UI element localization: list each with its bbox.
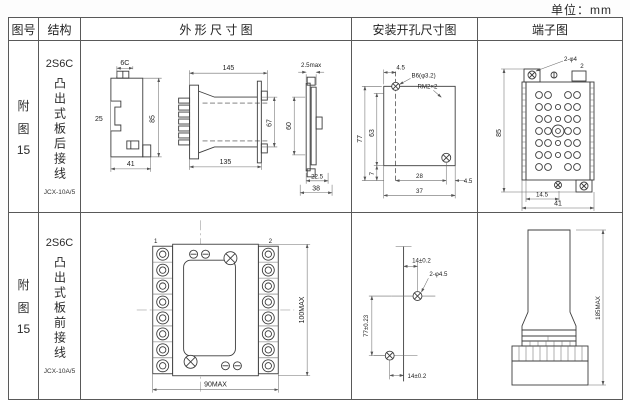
socket-front-view xyxy=(137,220,294,391)
outline-drawing-rear-wiring: 6C 25 85 41 xyxy=(81,41,351,213)
mounting-cell-row1: 4.5 B6(φ3.2) RM2×2 77 63 7 28 xyxy=(352,41,478,213)
view-c-dimensions: 2.5max 60 22.5 38 xyxy=(286,62,332,196)
dim-2-5max: 2.5max xyxy=(301,62,322,69)
dim-185max: 185MAX xyxy=(595,296,602,320)
dim-77: 77 xyxy=(357,134,364,142)
panel-section-view xyxy=(306,77,322,177)
dim-38: 38 xyxy=(312,185,320,192)
drawing-table: 图号 结构 外 形 尺 寸 图 安装开孔尺寸图 端子图 附 图 15 2S6C … xyxy=(8,17,623,400)
structure-model: 2S6C xyxy=(46,58,74,70)
terminal-diagram-front: 185MAX xyxy=(478,214,622,398)
dim-77-tol: 77±0.23 xyxy=(363,314,370,337)
dim-4-5-right: 4.5 xyxy=(464,178,473,185)
fig-no-char: 图 xyxy=(17,299,29,316)
fig-no-char: 图 xyxy=(17,120,29,137)
dim-85-terminal: 85 xyxy=(496,129,503,137)
structure-desc: 凸出式板前接线 xyxy=(54,256,66,361)
fig-no-char: 附 xyxy=(17,276,29,293)
structure-model: 2S6C xyxy=(46,237,74,249)
structure-desc: 凸出式板后接线 xyxy=(54,77,66,182)
outline-drawing-front-wiring: 1 2 90MAX 100MAX xyxy=(81,214,351,398)
dim-14-bottom: 14±0.2 xyxy=(408,373,427,380)
col-header-terminal: 端子图 xyxy=(478,18,622,41)
dim-85: 85 xyxy=(150,115,157,123)
dim-145: 145 xyxy=(223,65,235,72)
dim-6c: 6C xyxy=(120,60,129,67)
fig-no-char: 15 xyxy=(17,322,30,336)
mounting-holes xyxy=(374,246,436,381)
structure-sub-model: JCX-10A/5 xyxy=(44,189,75,196)
dim-14-5: 14.5 xyxy=(536,191,549,198)
outline-cell-row1: 6C 25 85 41 xyxy=(81,41,352,213)
dim-135: 135 xyxy=(220,158,232,165)
relay-profile-view xyxy=(111,71,151,157)
relay-side-view xyxy=(179,81,268,163)
mount-hole-label: 2-φ4 xyxy=(564,56,578,63)
thread-spec-label: RM2×2 xyxy=(417,83,438,90)
dim-28: 28 xyxy=(416,173,423,180)
dim-37: 37 xyxy=(416,187,423,194)
dim-41: 41 xyxy=(127,160,135,167)
dim-41-terminal: 41 xyxy=(554,200,562,207)
terminal-holes xyxy=(536,91,581,170)
hole-spec-label-2: 2-φ4.5 xyxy=(429,271,448,278)
col-header-fig-no: 图号 xyxy=(9,18,39,41)
terminal-block xyxy=(522,69,594,192)
fig-no-cell-row1: 附 图 15 xyxy=(9,41,39,213)
col-header-structure: 结构 xyxy=(39,18,81,41)
dim-60: 60 xyxy=(286,122,293,130)
mounting-hole-drawing-front: 14±0.2 2-φ4.5 77±0.23 14±0.2 xyxy=(352,214,477,398)
dim-67: 67 xyxy=(266,119,273,127)
terminal-diagram-rear: 2 2-φ4 85 14.5 41 xyxy=(478,41,622,213)
terminal-col-label-1: 1 xyxy=(154,238,158,245)
view-b-dimensions: 145 135 67 xyxy=(190,65,278,170)
fig-no-char: 15 xyxy=(17,143,30,157)
dim-7: 7 xyxy=(369,171,376,175)
terminal-dimensions-2: 185MAX xyxy=(576,230,606,385)
terminal-cell-row1: 2 2-φ4 85 14.5 41 xyxy=(478,41,622,213)
dim-25: 25 xyxy=(95,116,103,123)
hole-spec-label: B6(φ3.2) xyxy=(412,72,436,79)
relay-with-socket-side-view xyxy=(512,230,588,385)
structure-cell-row2: 2S6C 凸出式板前接线 JCX-10A/5 xyxy=(39,213,81,399)
fig-no-char: 附 xyxy=(17,97,29,114)
dim-4-5-top: 4.5 xyxy=(396,64,405,71)
mounting-cell-row2: 14±0.2 2-φ4.5 77±0.23 14±0.2 xyxy=(352,213,478,399)
dim-63: 63 xyxy=(369,128,376,136)
mounting-dimensions-2: 14±0.2 2-φ4.5 77±0.23 14±0.2 xyxy=(363,257,448,380)
col-header-mounting: 安装开孔尺寸图 xyxy=(352,18,478,41)
unit-label: 单位：mm xyxy=(551,1,612,18)
outline-cell-row2: 1 2 90MAX 100MAX xyxy=(81,213,352,399)
structure-cell-row1: 2S6C 凸出式板后接线 JCX-10A/5 xyxy=(39,41,81,213)
dim-90max: 90MAX xyxy=(204,382,227,389)
dim-14-top: 14±0.2 xyxy=(412,257,431,264)
mounting-hole-drawing-rear: 4.5 B6(φ3.2) RM2×2 77 63 7 28 xyxy=(352,41,477,213)
structure-sub-model: JCX-10A/5 xyxy=(44,368,75,375)
terminal-cell-row2: 185MAX xyxy=(478,213,622,399)
dim-100max: 100MAX xyxy=(299,296,306,323)
dim-22-5: 22.5 xyxy=(311,173,324,180)
terminal-corner-label: 2 xyxy=(580,63,584,70)
col-header-outline: 外 形 尺 寸 图 xyxy=(81,18,352,41)
fig-no-cell-row2: 附 图 15 xyxy=(9,213,39,399)
